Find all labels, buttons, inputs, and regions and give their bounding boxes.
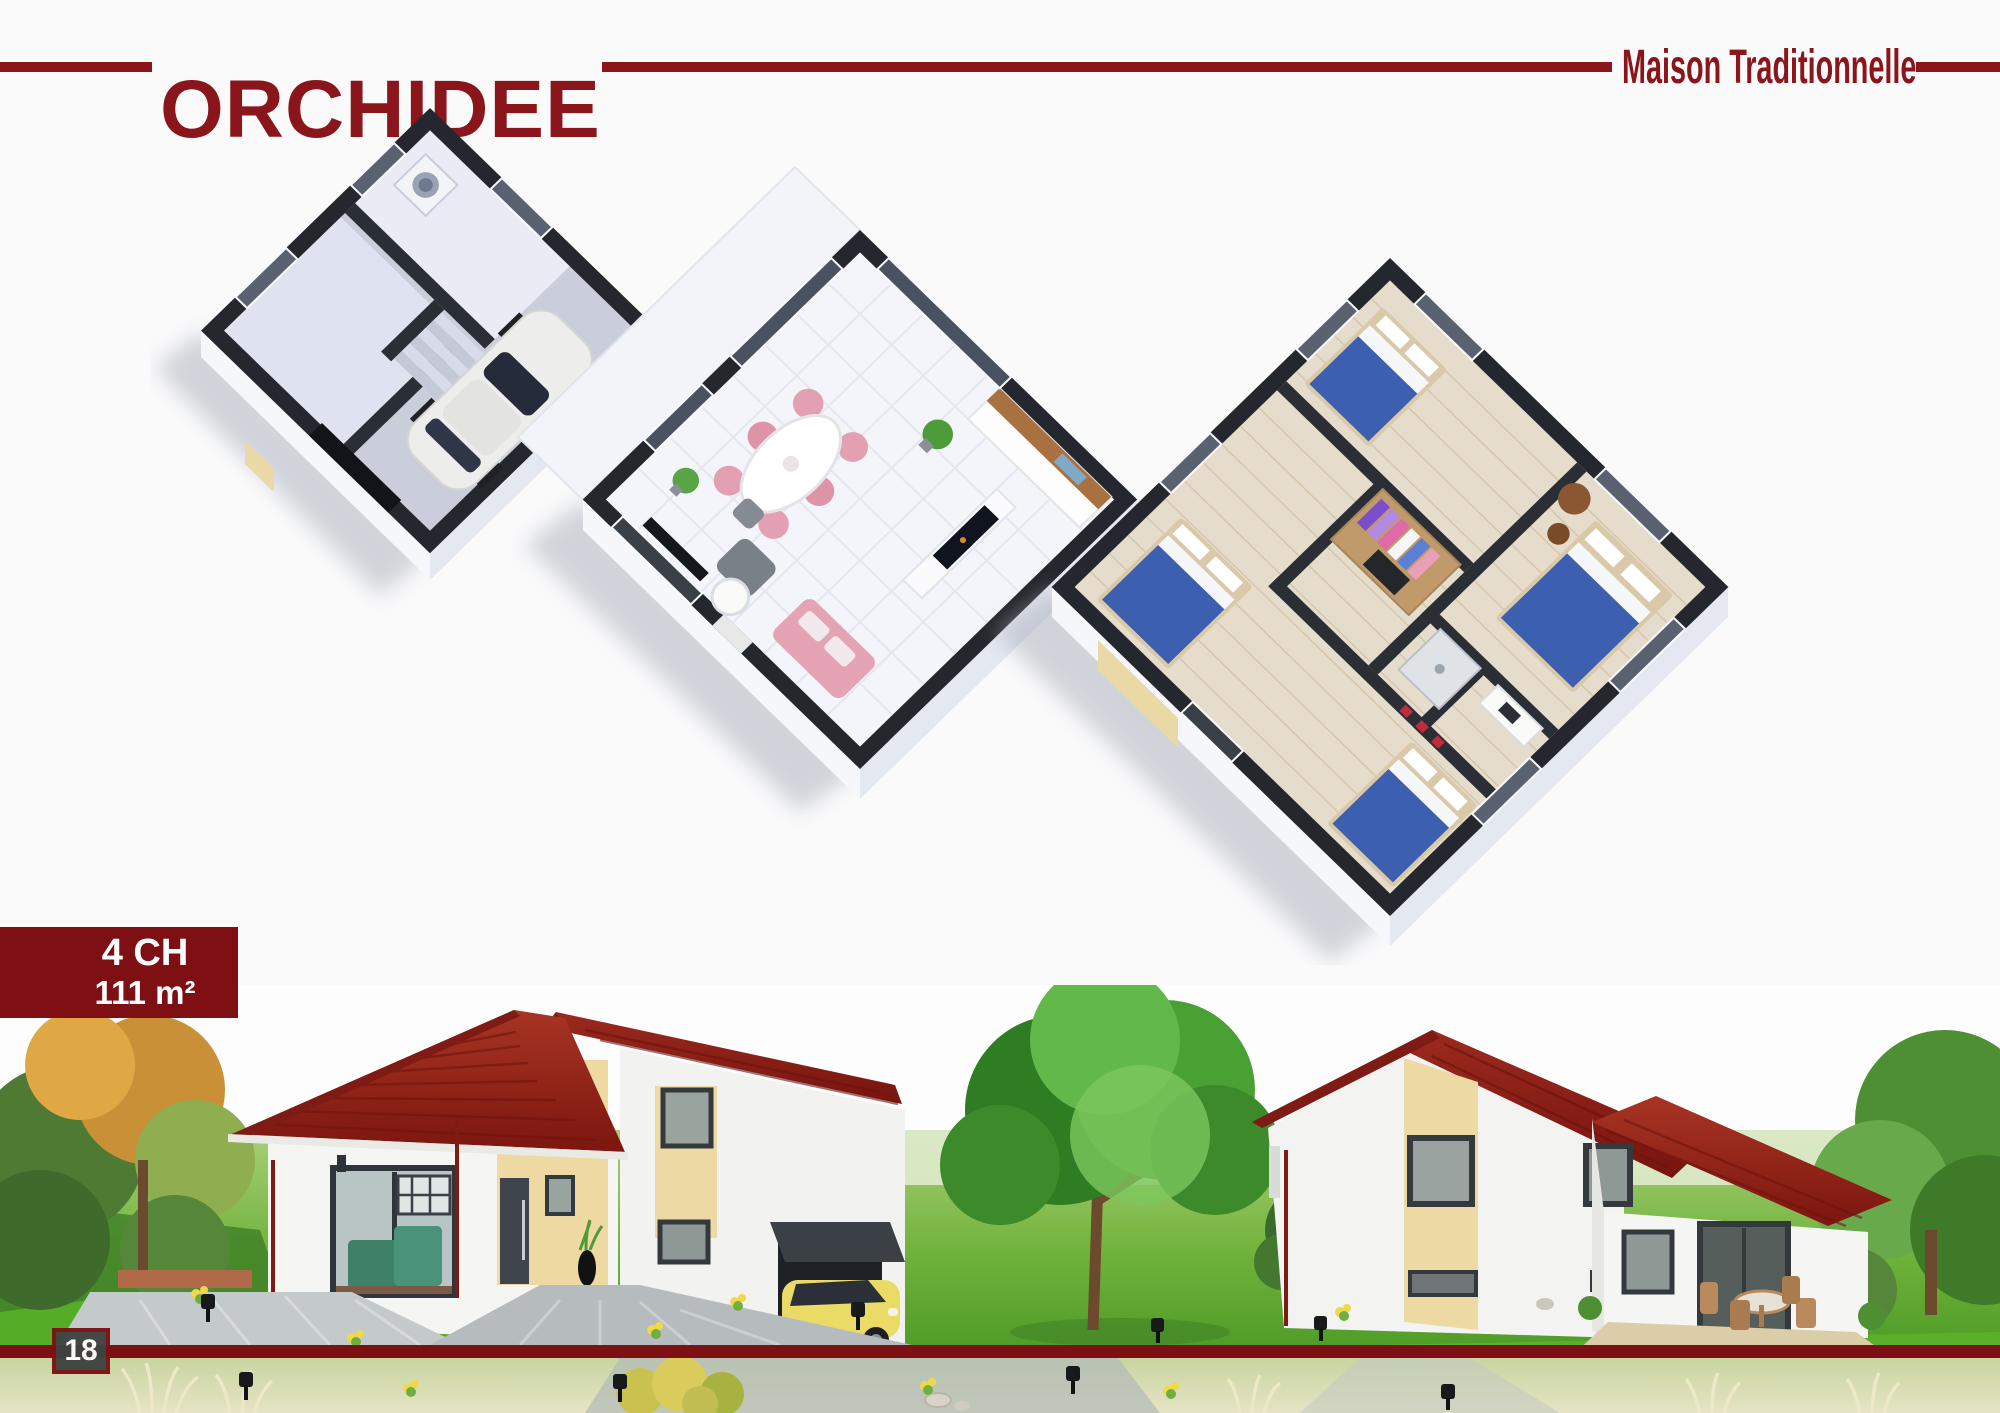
- sliding-bay-window: [333, 1168, 455, 1295]
- page-number-badge: 18: [52, 1328, 110, 1374]
- foreground-meadow: [0, 1356, 2000, 1413]
- spec-badge: 4 CH 111 m²: [0, 927, 238, 1018]
- main-living-floor-plan: [518, 167, 1137, 812]
- bottom-rule: [0, 1345, 2000, 1358]
- garage-tilt-door: [770, 1222, 905, 1262]
- brochure-page: ORCHIDEE Maison Traditionnelle: [0, 0, 2000, 1413]
- header-rule-middle: [602, 62, 1612, 72]
- bedrooms-floor-plan: [995, 258, 1728, 962]
- page-number: 18: [64, 1334, 97, 1368]
- spec-badge-area: 111 m²: [95, 975, 196, 1011]
- window: [1624, 1232, 1672, 1292]
- header-rule-left: [0, 62, 152, 72]
- wall-lamp: [337, 1155, 346, 1172]
- header-rule-right: [1916, 62, 2000, 72]
- floor-plans-illustration: [150, 85, 1850, 965]
- spec-badge-bedrooms: 4 CH: [102, 933, 189, 975]
- sidelight-window: [547, 1177, 573, 1214]
